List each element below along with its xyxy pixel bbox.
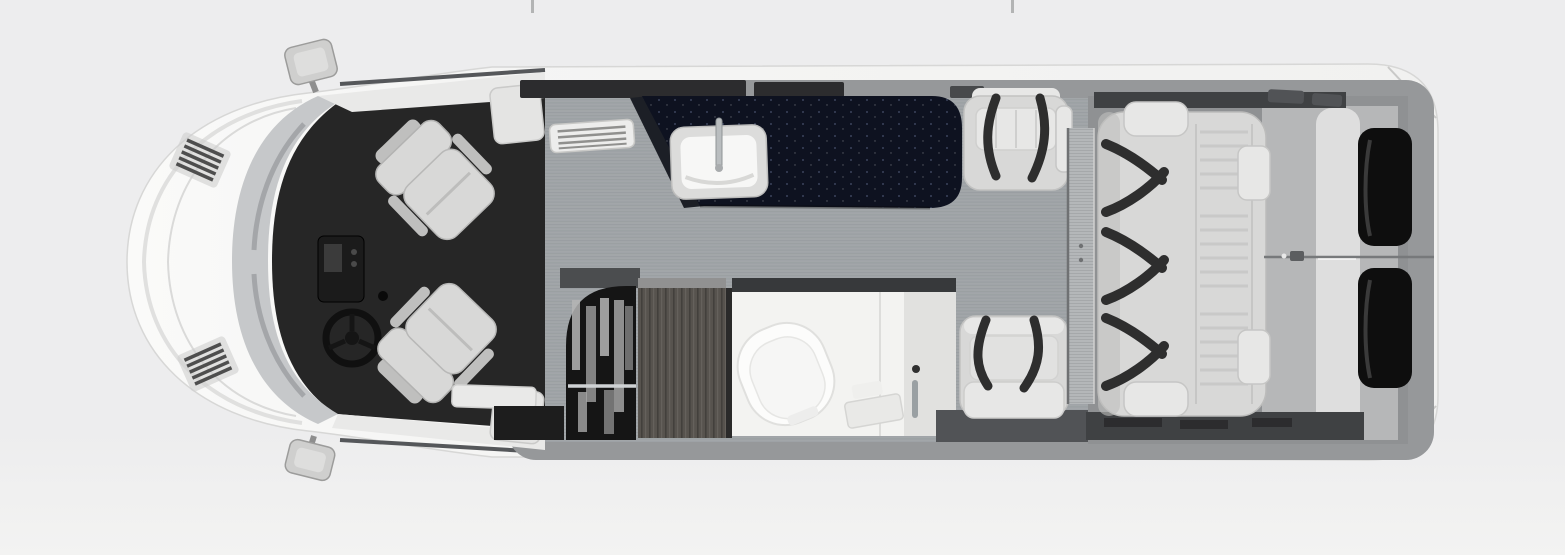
sofa-headrest-bottom — [1238, 330, 1270, 384]
floor-vent — [1104, 418, 1162, 427]
rear-ceiling-vent — [1268, 89, 1305, 104]
sofa-armrest-top — [1124, 102, 1188, 136]
divider-panel — [1068, 128, 1094, 404]
rear-ceiling-vent — [1312, 93, 1343, 107]
van-floorplan-rendering — [0, 0, 1565, 555]
cabinet-bath-gap — [726, 288, 732, 438]
bathroom-wall-band — [732, 278, 956, 292]
window-strip-left — [520, 80, 746, 98]
sofa-armrest-bottom — [1124, 382, 1188, 416]
bathroom — [726, 278, 956, 437]
dinette-seat-front — [964, 88, 1072, 190]
step-well — [494, 406, 564, 440]
rear-sofa — [1098, 102, 1270, 416]
door-latch — [1290, 251, 1304, 261]
rear-bed-edge — [1316, 108, 1360, 438]
entry-step — [452, 385, 537, 410]
wardrobe-top-band — [560, 268, 640, 288]
dinette-seat-rear — [960, 316, 1068, 418]
floor-vent — [1180, 420, 1228, 429]
window-strip-mid — [754, 82, 844, 98]
side-mirror-bottom — [284, 436, 337, 482]
shower-head — [912, 365, 920, 373]
door-latch-pin — [1282, 254, 1287, 259]
carousel-image-area — [0, 0, 1565, 555]
sofa-headrest-top — [1238, 146, 1270, 200]
floor-vent — [1252, 418, 1292, 427]
faucet — [715, 118, 723, 172]
side-mirror-top — [283, 38, 339, 92]
wood-cabinet — [638, 288, 726, 438]
vent-grille — [549, 119, 635, 153]
counter-shadow-edge — [700, 206, 930, 208]
cabinet-top-edge — [638, 278, 726, 288]
gear-lever — [378, 291, 388, 301]
shower-rail — [912, 380, 918, 418]
